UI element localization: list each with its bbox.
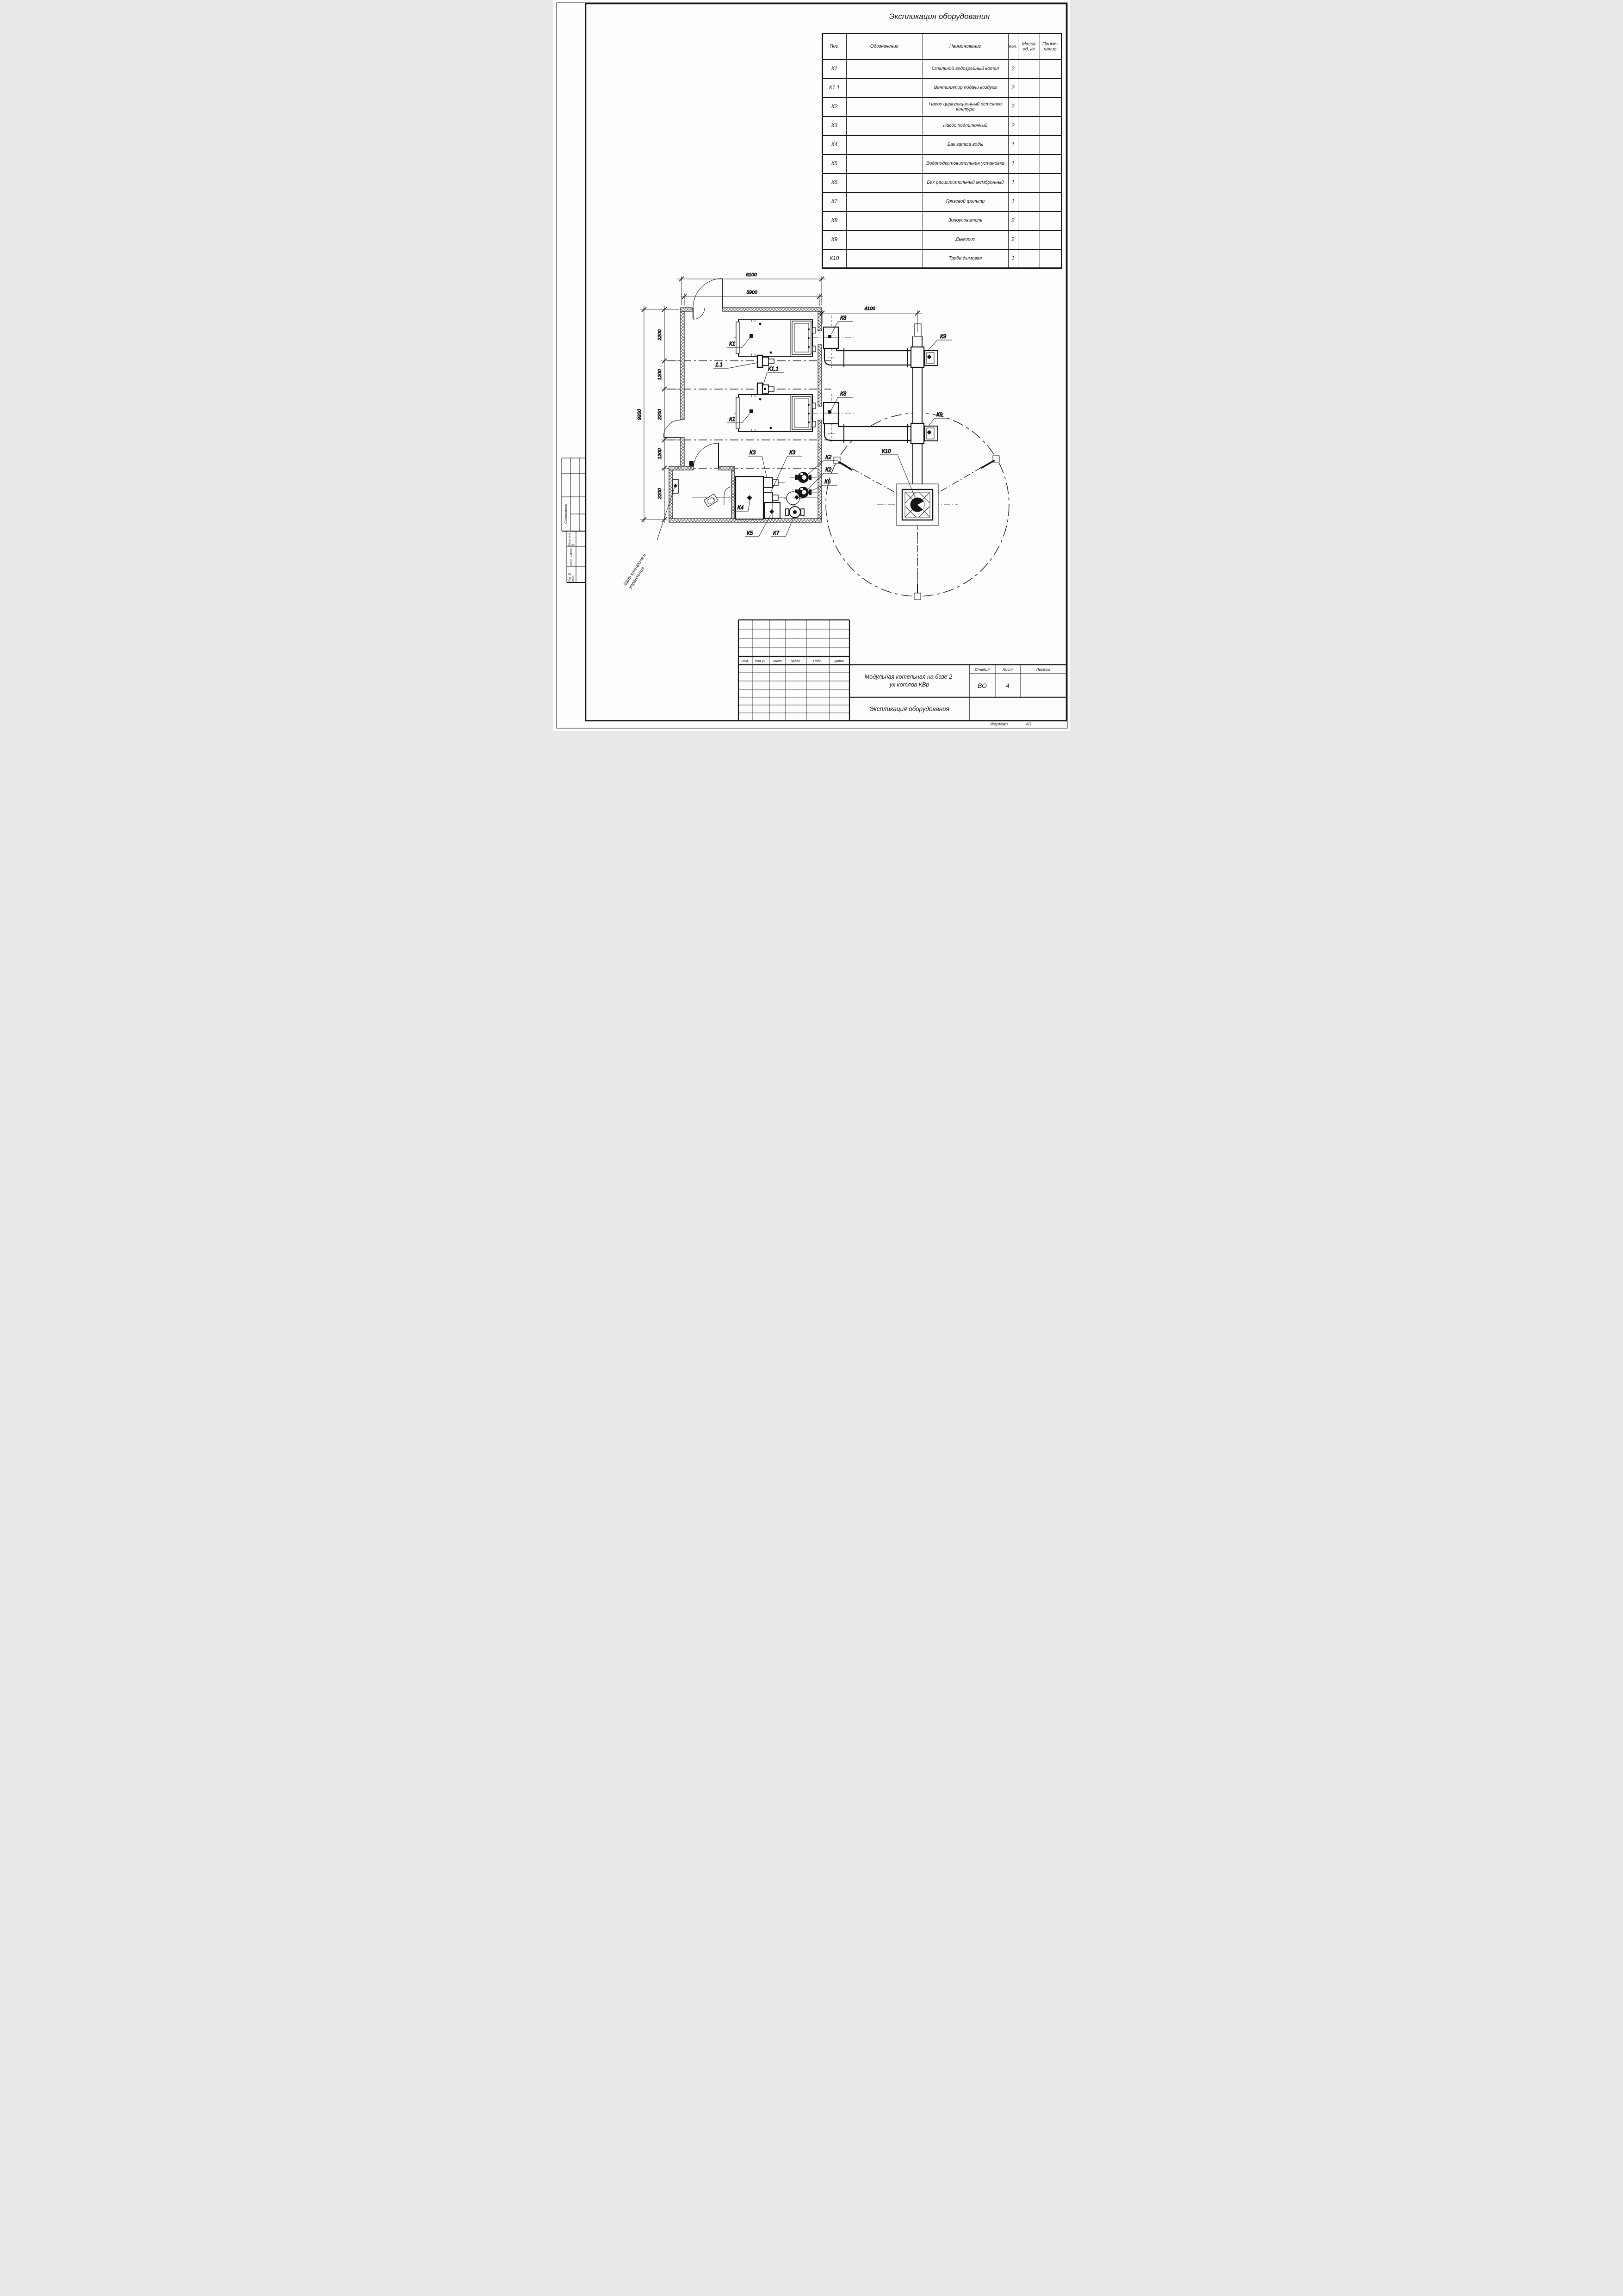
spec-note (1040, 79, 1061, 98)
spec-row-k10: К10Труба дымовая1 (822, 249, 1061, 268)
spec-designation (846, 60, 923, 79)
tb-col-list: Лист (769, 656, 786, 665)
flue-junction (911, 347, 924, 367)
spec-mass (1018, 192, 1040, 211)
callout-k9: К9 (940, 334, 947, 340)
water-tank-k4 (736, 477, 763, 519)
tb-col-koluch: Кол.уч. (752, 656, 769, 665)
spec-qty: 1 (1008, 173, 1018, 192)
spec-name: Стальной водогрейный котёл (923, 60, 1008, 79)
ash-catcher-k8-upper (824, 327, 838, 348)
smoke-exhauster-k9-lower (925, 426, 938, 441)
drawing-sheet: 6100 5900 4100 9200 2200 1200 2200 1200 … (553, 0, 1070, 731)
dim-9200: 9200 (637, 409, 642, 420)
spec-name: Бак запаса воды (923, 136, 1008, 155)
spec-name: Бак расширительный мембранный (923, 173, 1008, 192)
flue-ducts (824, 324, 924, 489)
tb-col-izm: Изм. (738, 656, 752, 665)
spec-note (1040, 60, 1061, 79)
spec-pos: К3 (822, 117, 846, 136)
spec-header-mass: Масса ед, кг (1018, 34, 1040, 60)
spec-pos: К1.1 (822, 79, 846, 98)
tb-col-data: Дата (830, 656, 849, 665)
spec-designation (846, 192, 923, 211)
spec-qty: 2 (1008, 230, 1018, 249)
spec-name: Труба дымовая (923, 249, 1008, 268)
spec-mass (1018, 60, 1040, 79)
callout-k8: К8 (840, 391, 847, 397)
spec-row-k1: К1Стальной водогрейный котёл2 (822, 60, 1061, 79)
control-panel (673, 479, 678, 493)
spec-header-note: Приме- чание (1040, 34, 1061, 60)
callout-k3: К3 (789, 450, 796, 456)
spec-row-k1-1: К1.1Вентилятор подачи воздуха2 (822, 79, 1061, 98)
spec-pos: К6 (822, 173, 846, 192)
spec-name: Вентилятор подачи воздуха (923, 79, 1008, 98)
tb-project-name: Модульная котельная на базе 2-ух котлов … (850, 666, 969, 696)
spec-qty: 2 (1008, 211, 1018, 230)
callout-k2: К2 (825, 455, 832, 460)
spec-qty: 2 (1008, 60, 1018, 79)
spec-name: Грязевой фильтр (923, 192, 1008, 211)
spec-qty: 2 (1008, 79, 1018, 98)
spec-note (1040, 211, 1061, 230)
spec-mass (1018, 173, 1040, 192)
callout-k1: К1 (729, 341, 735, 347)
tb-col-podp: Подп. (806, 656, 830, 665)
spec-pos: К5 (822, 155, 846, 173)
tb-sheet-value: 4 (995, 674, 1021, 697)
spec-pos: К4 (822, 136, 846, 155)
spec-note (1040, 155, 1061, 173)
spec-qty: 1 (1008, 192, 1018, 211)
dim-2200: 2200 (657, 409, 663, 421)
spec-designation (846, 79, 923, 98)
guy-anchor (914, 593, 921, 600)
filter-k7 (786, 507, 804, 518)
spec-qty: 1 (1008, 155, 1018, 173)
spec-row-k4: К4Бак запаса воды1 (822, 136, 1061, 155)
spec-mass (1018, 230, 1040, 249)
spec-qty: 2 (1008, 117, 1018, 136)
boiler-k1-upper (736, 319, 816, 356)
smoke-exhauster-k9-upper (925, 351, 938, 365)
pump-k2-upper (795, 472, 811, 483)
callout-k2: К2 (825, 467, 832, 473)
spec-name: Насос подпиточный (923, 117, 1008, 136)
spec-name: Золоуловитель (923, 211, 1008, 230)
callout-k9: К9 (936, 412, 943, 418)
spec-note (1040, 136, 1061, 155)
spec-pos: К2 (822, 98, 846, 117)
spec-name: Дымосос (923, 230, 1008, 249)
water-treatment-k5 (764, 502, 780, 518)
spec-pos: К1 (822, 60, 846, 79)
side-label-replace-inv: Взам. инв. № (567, 531, 576, 546)
spec-table-title: Экспликация оборудования (824, 12, 1055, 21)
spec-pos: К9 (822, 230, 846, 249)
spec-designation (846, 136, 923, 155)
dim-5900: 5900 (746, 290, 757, 295)
callout-k5: К5 (747, 531, 753, 536)
spec-note (1040, 192, 1061, 211)
callout-1-1: 1.1 (715, 362, 723, 368)
callout-k1: К1 (729, 417, 735, 422)
side-label-inv-orig: Инв. № подл. (567, 567, 576, 582)
spec-designation (846, 98, 923, 117)
callout-k3: К3 (750, 450, 756, 456)
flue-junction (911, 423, 924, 444)
ash-catcher-k8-lower (824, 402, 838, 424)
dim-6100: 6100 (746, 272, 757, 278)
spec-pos: К10 (822, 249, 846, 268)
spec-row-k9: К9Дымосос2 (822, 230, 1061, 249)
spec-mass (1018, 155, 1040, 173)
spec-note (1040, 249, 1061, 268)
spec-header-pos: Поз. (822, 34, 846, 60)
tb-doc-title: Экспликация оборудования (850, 697, 969, 721)
spec-designation (846, 249, 923, 268)
boiler-k1-lower (736, 395, 816, 432)
dim-2200: 2200 (657, 488, 663, 500)
chimney-k10 (897, 484, 938, 526)
tb-sheets-value (1021, 674, 1066, 697)
tb-sheet-label: Лист (995, 665, 1021, 674)
spec-designation (846, 117, 923, 136)
spec-designation (846, 211, 923, 230)
spec-row-k8: К8Золоуловитель2 (822, 211, 1061, 230)
spec-note (1040, 173, 1061, 192)
spec-note (1040, 98, 1061, 117)
spec-row-k3: К3Насос подпиточный2 (822, 117, 1061, 136)
dim-2200: 2200 (657, 329, 663, 341)
fan-k1-1-upper (757, 355, 774, 367)
spec-mass (1018, 79, 1040, 98)
spec-header-qty: Кол. (1008, 34, 1018, 60)
spec-row-k7: К7Грязевой фильтр1 (822, 192, 1061, 211)
callout-k6: К6 (824, 479, 831, 485)
spec-qty: 1 (1008, 249, 1018, 268)
spec-note (1040, 117, 1061, 136)
tb-stage-label: Стадия (970, 665, 995, 674)
sink (704, 487, 732, 507)
spec-designation (846, 230, 923, 249)
spec-mass (1018, 98, 1040, 117)
spec-header-name: Наименование (923, 34, 1008, 60)
callout-k7: К7 (773, 531, 780, 536)
side-label-sign-date: Подп. и дата (567, 546, 576, 567)
callout-k4: К4 (737, 505, 743, 511)
tb-col-ndok: №док. (786, 656, 806, 665)
spec-name: Водоподготовительная установка (923, 155, 1008, 173)
spec-pos: К8 (822, 211, 846, 230)
format-value: А3 (1026, 722, 1032, 727)
expansion-tank-k6 (787, 492, 799, 505)
spec-mass (1018, 136, 1040, 155)
fan-k1-1-lower (757, 383, 774, 395)
dim-4100: 4100 (864, 306, 875, 311)
spec-mass (1018, 249, 1040, 268)
floor-plan: 6100 5900 4100 9200 2200 1200 2200 1200 … (637, 272, 1009, 600)
spec-designation (846, 155, 923, 173)
spec-mass (1018, 211, 1040, 230)
callout-k10: К10 (882, 449, 891, 454)
dim-1200: 1200 (657, 369, 663, 380)
spec-mass (1018, 117, 1040, 136)
spec-note (1040, 230, 1061, 249)
spec-qty: 1 (1008, 136, 1018, 155)
dim-1200: 1200 (657, 448, 663, 459)
spec-row-k2: К2Насос циркуляционный сетевого контура2 (822, 98, 1061, 117)
spec-name: Насос циркуляционный сетевого контура (923, 98, 1008, 117)
spec-header-row: Поз. Обозначение Наименование Кол. Масса… (822, 34, 1061, 60)
spec-row-k6: К6Бак расширительный мембранный1 (822, 173, 1061, 192)
spec-row-k5: К5Водоподготовительная установка1 (822, 155, 1061, 173)
callout-k8: К8 (840, 316, 847, 321)
format-label: Формат (991, 722, 1008, 727)
spec-designation (846, 173, 923, 192)
spec-qty: 2 (1008, 98, 1018, 117)
spec-header-designation: Обозначение (846, 34, 923, 60)
spec-pos: К7 (822, 192, 846, 211)
spec-table: Поз. Обозначение Наименование Кол. Масса… (822, 33, 1062, 269)
tb-sheets-label: Листов (1021, 665, 1066, 674)
callout-k1-1: К1.1 (768, 366, 779, 372)
side-label-approved: Согласовано (562, 497, 570, 531)
tb-stage-value: ВО (970, 674, 995, 697)
